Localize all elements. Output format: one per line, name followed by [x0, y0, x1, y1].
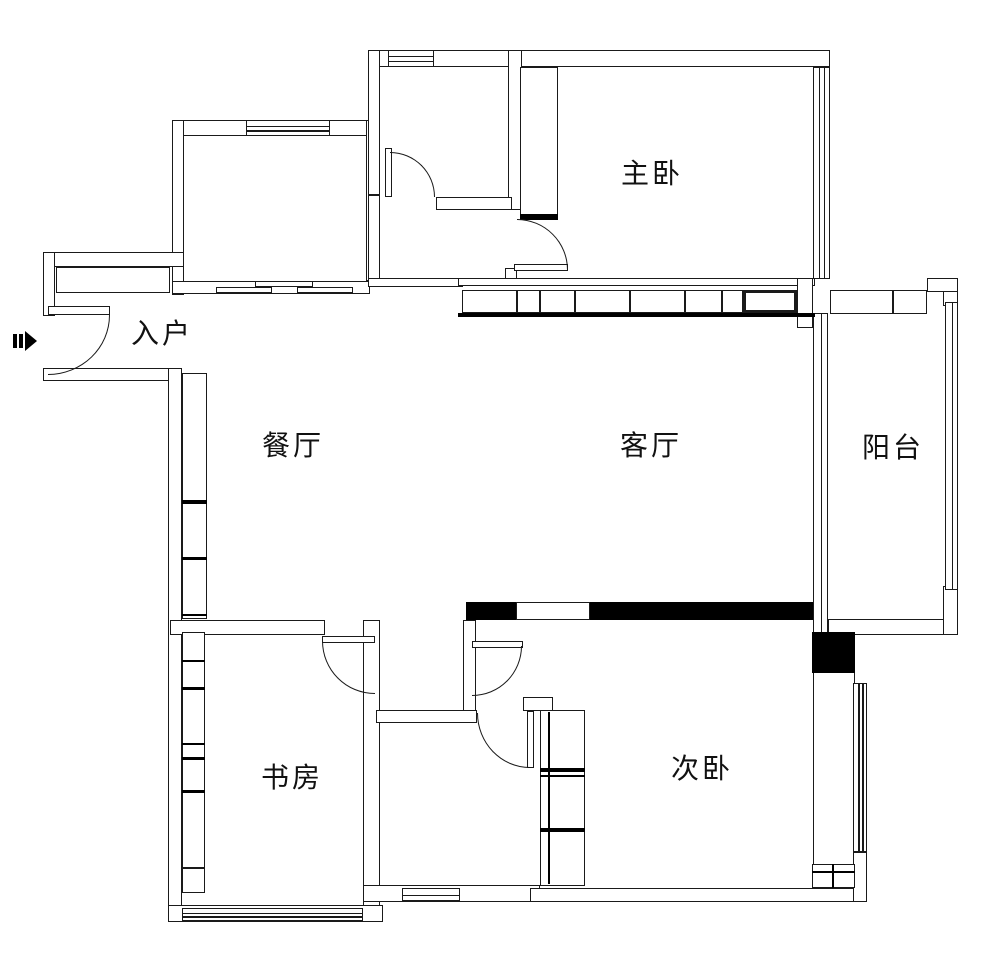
window-mullion-line — [403, 895, 459, 897]
wall-segment-40 — [297, 287, 353, 293]
window-8 — [685, 290, 722, 313]
hall-door-swing-arc — [472, 646, 522, 696]
wall-segment-34 — [182, 632, 205, 868]
window-16 — [402, 888, 460, 901]
solid-wall-16 — [548, 712, 550, 884]
window-11 — [830, 290, 893, 314]
room-label-second-bedroom: 次卧 — [671, 753, 733, 785]
window-17 — [182, 908, 363, 921]
window-mullion-line — [389, 56, 433, 58]
wall-segment-15 — [458, 278, 815, 286]
solid-wall-7 — [182, 614, 207, 616]
wall-segment-19 — [943, 586, 958, 635]
wall-segment-32 — [520, 67, 558, 215]
solid-wall-8 — [182, 660, 205, 662]
wall-segment-25 — [523, 697, 553, 711]
window-12 — [893, 290, 927, 314]
master-bedroom-door-swing-arc — [517, 219, 568, 270]
solid-wall-0 — [466, 602, 516, 620]
window-mullion-line — [183, 916, 362, 918]
solid-wall-11 — [182, 757, 205, 760]
room-label-living-room: 客厅 — [620, 430, 682, 462]
window-mullion-line — [824, 68, 826, 278]
room-label-dining-room: 餐厅 — [262, 430, 324, 462]
window-mullion-line — [821, 314, 823, 632]
window-1 — [246, 120, 330, 136]
top-bath-door-swing-arc — [390, 152, 435, 197]
wall-segment-31 — [56, 267, 170, 293]
study-door-swing-arc — [322, 641, 375, 694]
solid-wall-6 — [182, 557, 207, 560]
solid-wall-14 — [540, 775, 585, 777]
solid-wall-1 — [590, 602, 813, 620]
window-15 — [516, 602, 590, 620]
window-10 — [743, 290, 797, 313]
wall-segment-11 — [368, 278, 463, 287]
wall-segment-0 — [368, 50, 830, 67]
room-label-study: 书房 — [261, 762, 323, 794]
entry-door-swing-arc — [48, 315, 110, 375]
window-mullion-line — [952, 303, 954, 589]
solid-wall-18 — [812, 871, 855, 873]
entry-direction-arrow-icon — [13, 331, 37, 351]
window-mullion-line — [389, 61, 433, 63]
solid-wall-5 — [182, 500, 207, 504]
wall-segment-24 — [376, 710, 477, 723]
wall-segment-28 — [530, 888, 867, 902]
window-14 — [853, 683, 867, 852]
room-label-balcony: 阳台 — [862, 432, 924, 464]
wall-segment-2 — [172, 120, 184, 295]
window-mullion-line — [819, 68, 821, 278]
solid-wall-15 — [540, 828, 585, 832]
window-9 — [722, 290, 743, 313]
wall-segment-8 — [168, 368, 182, 922]
wall-segment-33 — [182, 373, 207, 619]
window-3 — [462, 290, 517, 313]
wall-segment-5 — [43, 252, 184, 267]
window-5 — [540, 290, 575, 313]
window-7 — [630, 290, 685, 313]
wall-segment-35 — [182, 868, 205, 893]
solid-wall-10 — [182, 743, 205, 745]
wall-segment-39 — [216, 287, 272, 293]
wall-segment-9 — [368, 50, 380, 195]
window-13 — [945, 302, 958, 590]
solid-wall-17 — [832, 864, 834, 888]
arrow-triangle — [25, 331, 37, 351]
wall-segment-16 — [797, 278, 813, 328]
wall-segment-36 — [540, 710, 585, 886]
solid-wall-13 — [540, 768, 585, 772]
room-label-master-bedroom: 主卧 — [621, 158, 683, 190]
window-2 — [813, 67, 830, 279]
solid-wall-2 — [812, 632, 855, 673]
solid-wall-4 — [458, 313, 815, 317]
arrow-bar — [19, 334, 23, 348]
wall-segment-20 — [927, 278, 958, 292]
wall-segment-30 — [853, 852, 867, 902]
window-mullion-line — [858, 684, 860, 851]
window-6 — [575, 290, 630, 313]
floor-plan: 入户 主卧 餐厅 客厅 阳台 书房 次卧 — [0, 0, 989, 970]
window-mullion-line — [183, 913, 362, 915]
entry-door-leaf — [48, 306, 110, 315]
window-0 — [388, 50, 434, 67]
wall-segment-10 — [368, 195, 380, 281]
wall-segment-13 — [436, 197, 512, 210]
window-4 — [517, 290, 540, 313]
window-mullion-line — [862, 684, 864, 851]
wall-segment-29 — [813, 672, 855, 866]
window-mullion-line — [247, 126, 329, 128]
window-mullion-line — [247, 130, 329, 132]
room-label-entry: 入户 — [131, 318, 193, 350]
arrow-bar — [13, 334, 17, 348]
solid-wall-12 — [182, 790, 205, 793]
window-18 — [813, 313, 828, 633]
solid-wall-9 — [182, 687, 205, 690]
bathroom-door-swing-arc — [477, 713, 530, 768]
